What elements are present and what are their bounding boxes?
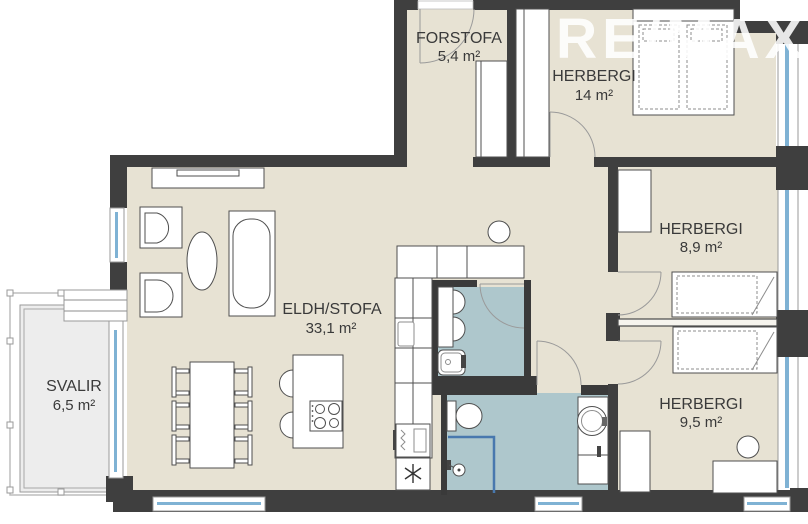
stool: [488, 221, 510, 243]
coffee-table: [187, 232, 217, 290]
armchair: [140, 273, 182, 317]
floor-plan-page: FORSTOFA 5,4 m² HERBERGI 14 m² HERBERGI …: [0, 0, 808, 524]
desk-stool: [737, 436, 759, 458]
cooktop: [310, 401, 342, 431]
east-window-band: [778, 33, 798, 503]
thin-partition: [618, 319, 777, 326]
svalir-label: SVALIR: [46, 378, 102, 395]
dresser: [620, 431, 650, 492]
wardrobe: [618, 170, 651, 232]
wc-fixtures: [438, 287, 466, 375]
dining-table: [190, 362, 234, 468]
floor-plan: FORSTOFA 5,4 m² HERBERGI 14 m² HERBERGI …: [0, 0, 808, 524]
oven: [393, 424, 430, 457]
south-window-bedroom: [744, 497, 790, 511]
forstofa-area: 5,4 m²: [438, 48, 481, 65]
west-window-upper: [110, 208, 124, 262]
armchair: [140, 207, 182, 248]
herbergi89-label: HERBERGI: [659, 221, 743, 238]
herbergi89-area: 8,9 m²: [680, 239, 723, 256]
kitchen-counter: [397, 246, 524, 278]
remax-watermark-logo: RE/MAX: [556, 7, 808, 71]
sofa: [229, 211, 275, 316]
single-bed: [672, 272, 777, 317]
balcony-door: [64, 290, 127, 321]
wc-sink: [438, 350, 466, 375]
forstofa-closet: [476, 61, 507, 157]
toilet: [447, 401, 482, 431]
eldhstofa-area: 33,1 m²: [306, 320, 357, 337]
single-bed: [673, 327, 777, 373]
wardrobe: [516, 9, 549, 157]
wc-cabinet: [438, 287, 453, 347]
vanity-basin: [578, 397, 609, 484]
south-window-bath: [535, 497, 582, 511]
dishwasher: [396, 458, 430, 490]
forstofa-label: FORSTOFA: [416, 30, 502, 47]
west-window-lower: [109, 321, 123, 478]
herbergi95-area: 9,5 m²: [680, 414, 723, 431]
herbergi95-label: HERBERGI: [659, 396, 743, 413]
svalir-area: 6,5 m²: [53, 397, 96, 414]
desk: [713, 461, 777, 493]
herbergi14-area: 14 m²: [575, 87, 613, 104]
eldhstofa-label: ELDH/STOFA: [282, 301, 382, 318]
sideboard: [152, 168, 264, 188]
south-window-living: [153, 497, 265, 511]
